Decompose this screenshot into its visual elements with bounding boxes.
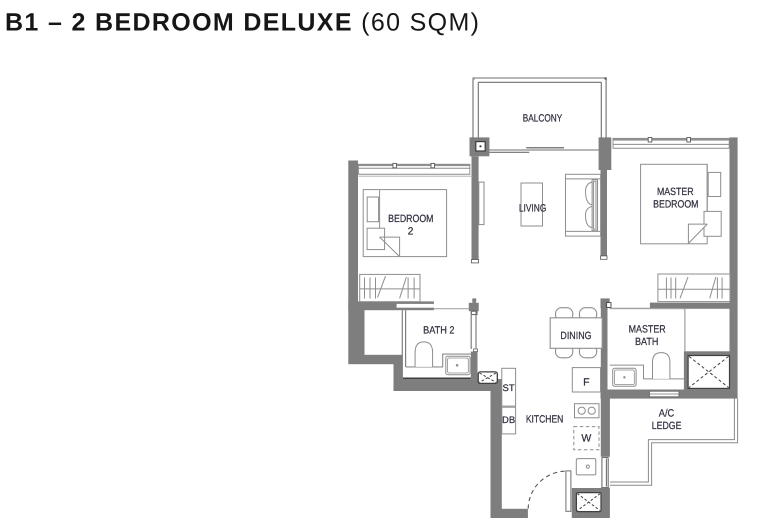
svg-text:MASTER: MASTER xyxy=(657,186,694,198)
svg-text:KITCHEN: KITCHEN xyxy=(526,414,564,426)
svg-text:ST: ST xyxy=(503,383,515,394)
svg-text:LEDGE: LEDGE xyxy=(652,420,682,432)
svg-text:BATH: BATH xyxy=(635,336,658,348)
svg-text:BEDROOM: BEDROOM xyxy=(653,199,698,211)
svg-text:BEDROOM: BEDROOM xyxy=(388,213,433,225)
svg-text:A/C: A/C xyxy=(659,407,675,419)
svg-text:W: W xyxy=(581,433,591,445)
svg-text:DB: DB xyxy=(502,415,515,426)
svg-text:F: F xyxy=(583,376,589,388)
svg-text:DINING: DINING xyxy=(560,330,591,342)
svg-text:LIVING: LIVING xyxy=(519,203,547,215)
svg-text:2: 2 xyxy=(408,226,414,238)
svg-text:B1 – 2 BEDROOM DELUXE (60 SQM): B1 – 2 BEDROOM DELUXE (60 SQM) xyxy=(5,9,480,37)
svg-text:BATH 2: BATH 2 xyxy=(423,325,455,337)
svg-text:MASTER: MASTER xyxy=(629,323,666,335)
svg-text:BALCONY: BALCONY xyxy=(523,112,563,124)
